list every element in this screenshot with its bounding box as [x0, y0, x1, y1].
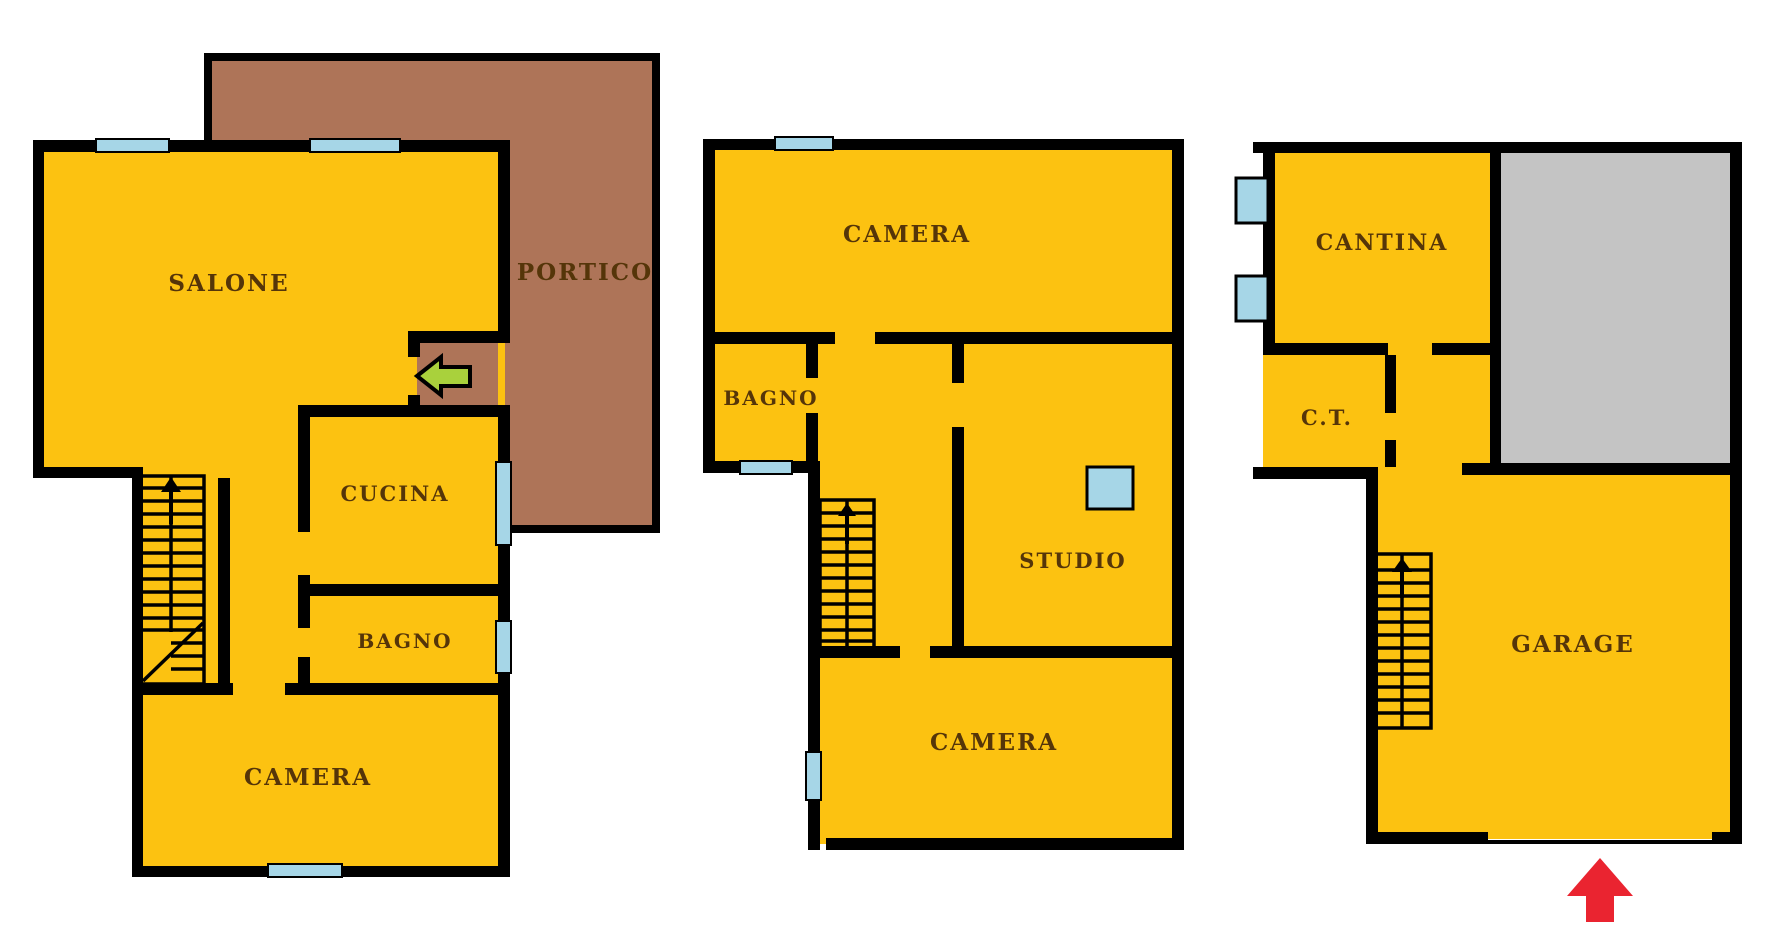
- wall: [806, 413, 818, 461]
- wall: [1253, 467, 1378, 479]
- wall: [1490, 142, 1501, 475]
- window-icon: [1236, 178, 1268, 223]
- window-icon: [268, 864, 342, 877]
- floor-plan-canvas: SALONE PORTICO CUCINA BAGNO CAMERA: [0, 0, 1778, 925]
- window-icon: [96, 139, 169, 152]
- skylight-window-icon: [1087, 467, 1133, 509]
- wall: [298, 405, 510, 417]
- room-label-camera-top: CAMERA: [843, 221, 971, 248]
- window-icon: [806, 752, 821, 800]
- camera-bagno-studio-floor: [709, 145, 1178, 467]
- wall: [33, 140, 44, 478]
- window-icon: [496, 462, 511, 545]
- wall: [498, 140, 510, 343]
- entrance-arrow-up-icon: [1567, 858, 1633, 922]
- floor-plan-drawing: SALONE PORTICO CUCINA BAGNO CAMERA: [0, 0, 1778, 925]
- wall: [1385, 355, 1396, 413]
- wall: [285, 683, 510, 695]
- garage-door-threshold: [1488, 840, 1712, 844]
- wall: [218, 478, 230, 683]
- window-icon: [310, 139, 400, 152]
- window-icon: [775, 137, 833, 150]
- unexcavated-gray-area: [1496, 153, 1730, 463]
- wall: [298, 657, 310, 683]
- room-label-portico: PORTICO: [517, 259, 653, 286]
- wall: [930, 646, 1184, 658]
- first-floor-plan: CAMERA BAGNO STUDIO CAMERA: [703, 137, 1184, 850]
- room-label-bagno: BAGNO: [357, 629, 452, 653]
- wall: [1366, 832, 1488, 844]
- room-label-ct: C.T.: [1301, 405, 1353, 430]
- wall: [33, 467, 133, 478]
- wall: [1263, 343, 1388, 355]
- wall: [826, 838, 1184, 850]
- wall: [806, 344, 818, 378]
- window-icon: [1236, 276, 1268, 321]
- room-label-cantina: CANTINA: [1316, 230, 1449, 256]
- ct-lobby-floor: [1263, 349, 1501, 469]
- ground-floor-plan: SALONE PORTICO CUCINA BAGNO CAMERA: [33, 57, 656, 877]
- wall: [310, 584, 510, 596]
- room-label-camera: CAMERA: [244, 764, 372, 791]
- wall: [1432, 343, 1500, 355]
- room-label-bagno: BAGNO: [723, 386, 818, 410]
- wall: [703, 139, 715, 473]
- wall: [715, 332, 835, 344]
- room-label-studio: STUDIO: [1019, 548, 1126, 573]
- basement-plan: CANTINA C.T. GARAGE: [1236, 142, 1742, 922]
- wall: [298, 417, 310, 532]
- wall: [1366, 467, 1378, 844]
- wall: [952, 427, 964, 652]
- wall: [408, 331, 420, 357]
- wall: [408, 331, 510, 343]
- room-label-cucina: CUCINA: [340, 481, 449, 506]
- window-icon: [496, 621, 511, 673]
- wall: [875, 332, 1184, 344]
- wall: [1730, 142, 1742, 844]
- wall: [298, 575, 310, 628]
- window-icon: [740, 461, 792, 474]
- room-label-salone: SALONE: [168, 270, 289, 297]
- wall: [1263, 142, 1275, 355]
- room-label-camera-bottom: CAMERA: [930, 729, 1058, 756]
- wall: [952, 332, 964, 383]
- wall: [1712, 832, 1742, 844]
- wall: [1385, 440, 1396, 467]
- camera-corridor-floor: [138, 478, 505, 872]
- wall: [1172, 139, 1184, 850]
- room-label-garage: GARAGE: [1511, 631, 1635, 658]
- wall: [1462, 463, 1742, 475]
